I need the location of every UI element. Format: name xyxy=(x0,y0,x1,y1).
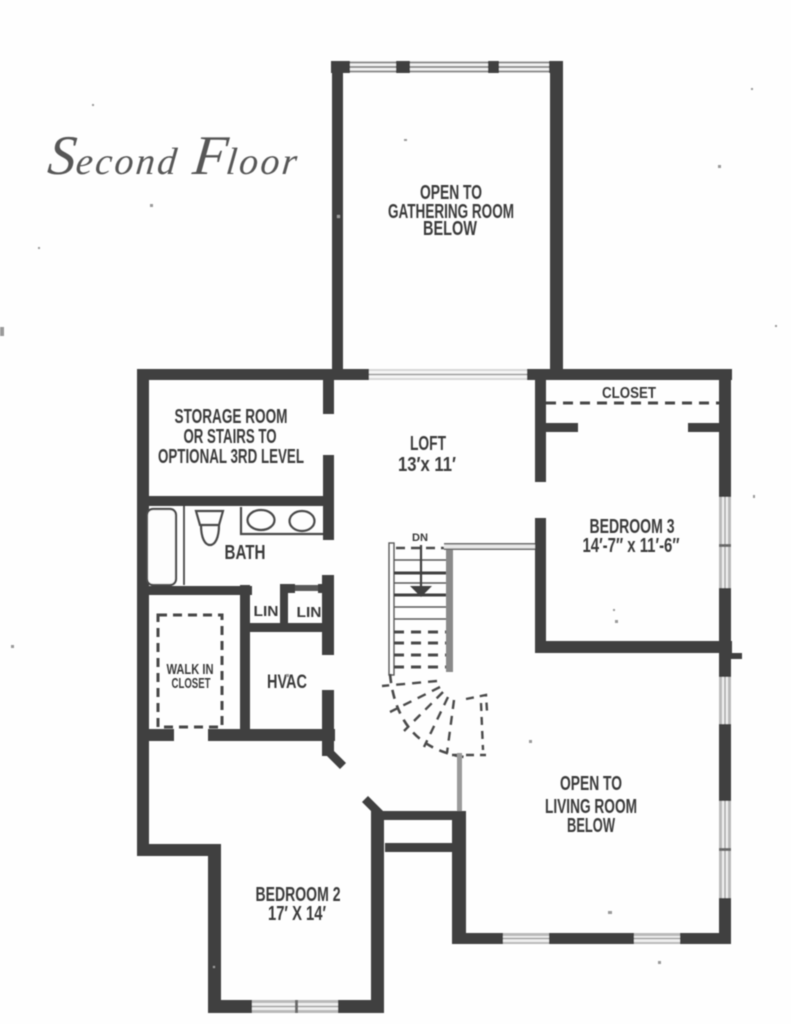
svg-text:LIN: LIN xyxy=(254,603,279,620)
svg-text:14′-7″ x 11′-6″: 14′-7″ x 11′-6″ xyxy=(583,535,680,557)
svg-text:DN: DN xyxy=(412,532,428,544)
svg-text:LOFT: LOFT xyxy=(410,433,446,455)
svg-text:BELOW: BELOW xyxy=(567,815,615,837)
svg-text:CLOSET: CLOSET xyxy=(172,675,211,692)
svg-text:OR STAIRS TO: OR STAIRS TO xyxy=(184,426,277,448)
svg-text:OPEN TO: OPEN TO xyxy=(560,773,622,795)
svg-text:BELOW: BELOW xyxy=(423,218,477,240)
svg-text:BATH: BATH xyxy=(225,542,266,564)
svg-text:17′ X 14′: 17′ X 14′ xyxy=(268,903,326,925)
svg-text:13′x 11′: 13′x 11′ xyxy=(398,454,456,476)
svg-text:OPTIONAL 3RD LEVEL: OPTIONAL 3RD LEVEL xyxy=(158,446,304,468)
svg-text:STORAGE ROOM: STORAGE ROOM xyxy=(175,406,288,428)
svg-text:CLOSET: CLOSET xyxy=(602,385,656,402)
svg-text:LIN: LIN xyxy=(297,604,322,621)
